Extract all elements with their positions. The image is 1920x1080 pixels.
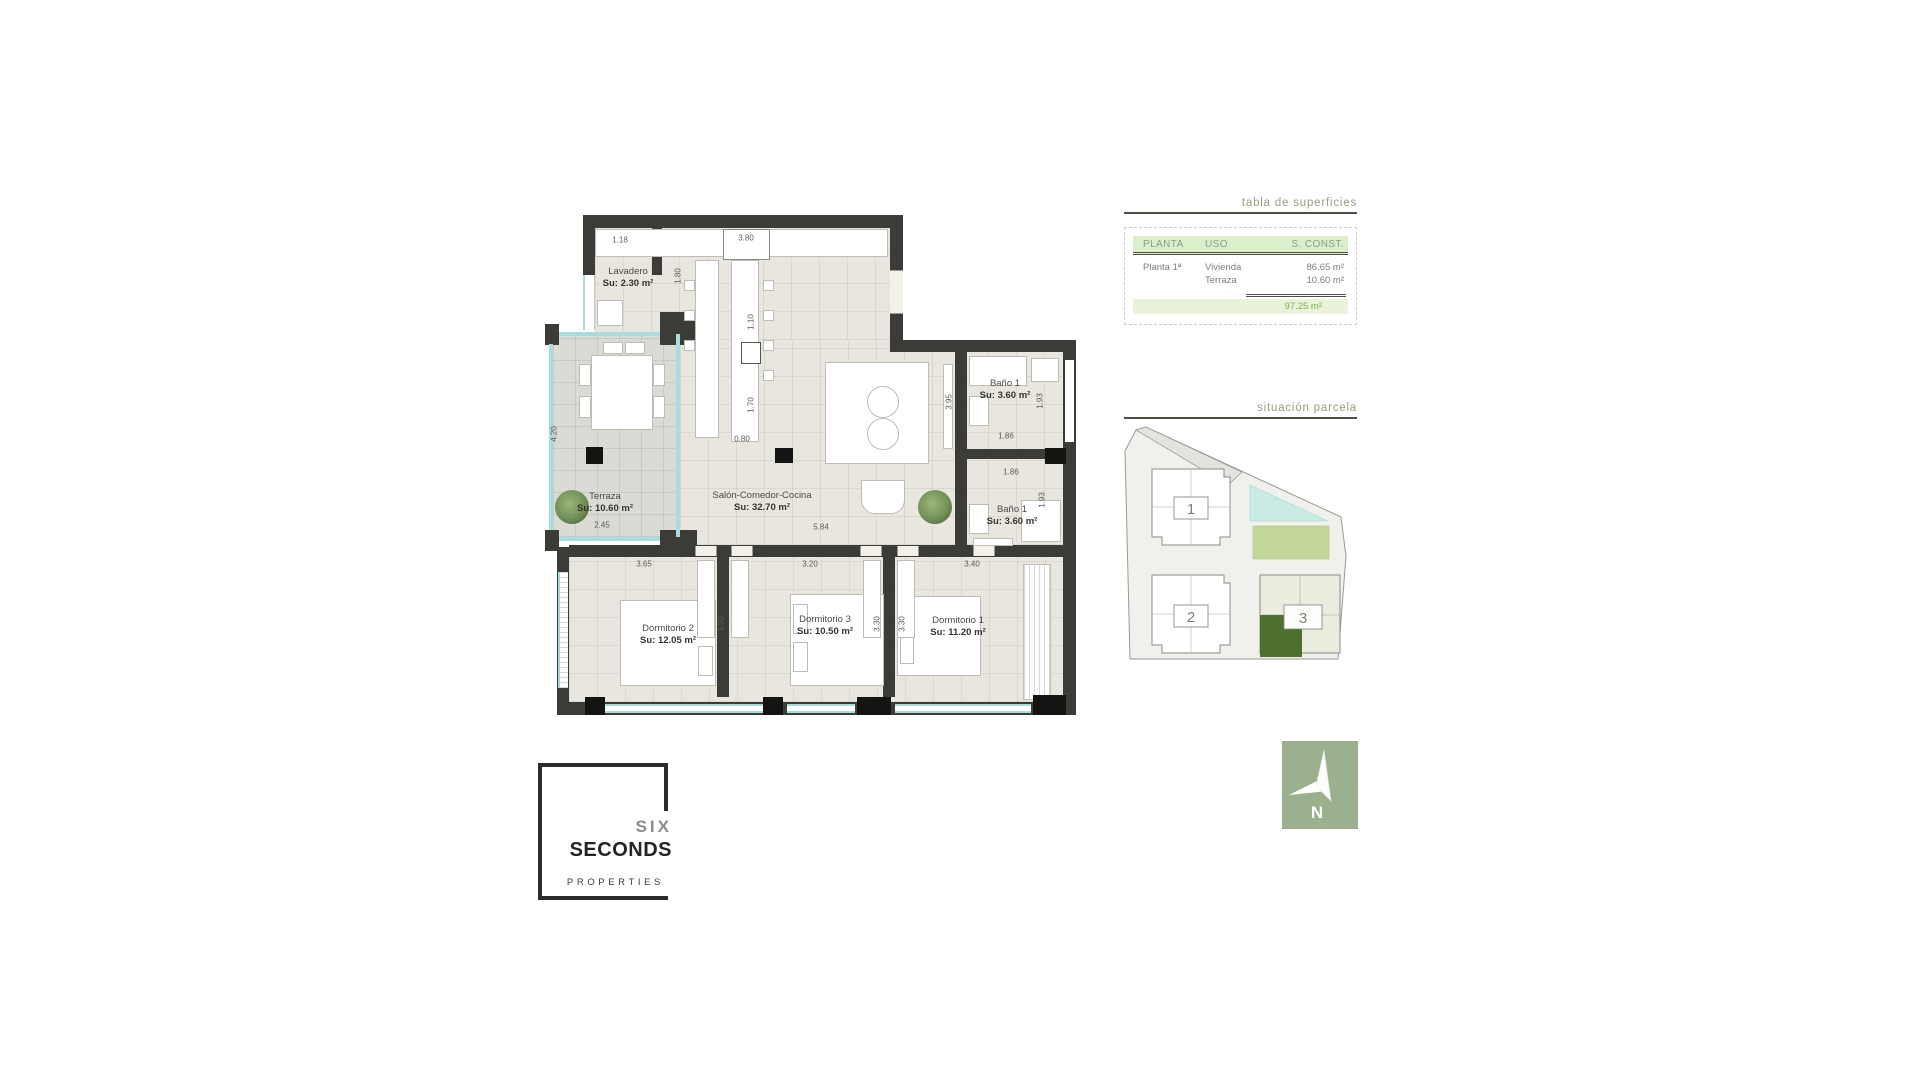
cell-sconst: 10.60 m² [1276, 275, 1348, 286]
header-sconst: S. CONST. [1276, 239, 1348, 250]
garden [1253, 526, 1329, 559]
room-name: Baño 1 [990, 378, 1020, 389]
dimension: 4.20 [550, 426, 559, 442]
parcel-map: 1 2 3 [1124, 425, 1357, 677]
room-area: Su: 2.30 m² [603, 278, 654, 289]
stool [684, 310, 695, 321]
wall [890, 340, 1076, 352]
pillow [900, 636, 914, 664]
pillar [763, 697, 783, 715]
door-opening [860, 546, 882, 556]
pillar [1033, 695, 1066, 715]
logo-word-six: SIX [636, 817, 672, 837]
dimension: 2.45 [594, 521, 610, 530]
room-name: Dormitorio 2 [642, 623, 694, 634]
pillar [1045, 448, 1066, 464]
logo-word-properties: PROPERTIES [567, 877, 664, 888]
stool [763, 310, 774, 321]
dimension: 3.20 [802, 560, 818, 569]
dimension: 3.95 [945, 394, 954, 410]
dimension: 1.86 [1003, 468, 1019, 477]
header-uso: USO [1205, 239, 1276, 250]
dimension: 3.30 [873, 616, 882, 632]
page: { "surfaces_table": { "title": "tabla de… [0, 0, 1920, 1080]
chair [603, 342, 623, 354]
surfaces-table-title: tabla de superficies [1124, 197, 1357, 209]
wall [583, 215, 903, 228]
stool [763, 280, 774, 291]
chair [653, 396, 665, 418]
room-name: Salón-Comedor-Cocina [712, 490, 811, 501]
pillar [586, 447, 603, 464]
room-label-dormitorio2: Dormitorio 2 Su: 12.05 m² [640, 623, 696, 648]
kitchen-counter [695, 260, 719, 438]
room-area: Su: 10.60 m² [577, 503, 633, 514]
north-label: N [1282, 803, 1352, 823]
vanity [973, 538, 1013, 546]
room-area: Su: 10.50 m² [797, 626, 853, 637]
pillar [857, 697, 891, 715]
table-row: Planta 1ª Vivienda 86.65 m² [1133, 262, 1348, 273]
closet [731, 560, 749, 638]
dimension: 1.70 [747, 397, 756, 413]
entry-door [890, 270, 903, 314]
window [787, 704, 855, 713]
needle [1316, 750, 1331, 801]
dimension: 5.84 [813, 523, 829, 532]
wall [955, 459, 967, 549]
stool [684, 280, 695, 291]
window [583, 275, 595, 330]
logo-word-seconds: SECONDS [570, 839, 672, 862]
coffee-table [867, 418, 899, 450]
building-2-label: 2 [1187, 609, 1195, 626]
cell-sconst: 86.65 m² [1276, 262, 1348, 273]
room-area: Su: 3.60 m² [987, 516, 1038, 527]
room-label-terraza: Terraza Su: 10.60 m² [577, 491, 633, 516]
window [605, 704, 763, 713]
wall [955, 352, 967, 452]
washer [597, 300, 623, 326]
room-label-bano1-top: Baño 1 Su: 3.60 m² [980, 378, 1031, 403]
terrace-glass-wall [676, 334, 680, 537]
terrace-glass-rail [559, 332, 660, 336]
pillow [698, 646, 713, 676]
chair [653, 364, 665, 386]
closet [697, 560, 715, 638]
sum-rule [1246, 294, 1346, 297]
room-name: Terraza [589, 491, 621, 502]
title-rule [1124, 417, 1357, 419]
door-opening [695, 546, 717, 556]
title-rule [1124, 212, 1357, 214]
total-surface: 97.25 m² [1133, 299, 1348, 314]
stool [763, 370, 774, 381]
room-area: Su: 12.05 m² [640, 635, 696, 646]
dimension: 0.80 [734, 435, 750, 444]
room-area: Su: 11.20 m² [930, 627, 985, 638]
wall [583, 215, 595, 275]
dimension: 1.93 [1038, 492, 1047, 508]
brand-logo: SIX SECONDS PROPERTIES [538, 763, 668, 900]
room-label-bano1-bottom: Baño 1 Su: 3.60 m² [987, 504, 1038, 529]
dimension: 3.65 [636, 560, 652, 569]
room-label-dormitorio3: Dormitorio 3 Su: 10.50 m² [797, 614, 853, 639]
window [895, 704, 1031, 713]
building-3-label: 3 [1299, 610, 1307, 627]
dimension: 3.30 [717, 616, 726, 632]
parcel-section: situación parcela 1 2 3 [1124, 402, 1357, 677]
wardrobe [1023, 564, 1051, 700]
room-name: Lavadero [608, 266, 648, 277]
room-label-dormitorio1: Dormitorio 1 Su: 11.20 m² [930, 615, 985, 640]
compass-needle-icon [1282, 741, 1358, 807]
window [558, 572, 568, 688]
plant [918, 490, 952, 524]
pillar [775, 448, 793, 463]
header-planta: PLANTA [1133, 239, 1205, 250]
dimension: 1.80 [674, 268, 683, 284]
door-opening [897, 546, 919, 556]
wall-corner [545, 530, 559, 551]
dimension: 1.93 [1036, 393, 1045, 409]
pool [1250, 485, 1328, 521]
pillar [585, 697, 605, 715]
surfaces-table-section: tabla de superficies PLANTA USO S. CONST… [1124, 197, 1357, 325]
north-compass: N [1282, 741, 1358, 829]
window [1065, 360, 1074, 442]
room-label-salon: Salón-Comedor-Cocina Su: 32.70 m² [712, 490, 811, 515]
stool [763, 340, 774, 351]
building-1-label: 1 [1187, 501, 1195, 518]
parcel-title: situación parcela [1124, 402, 1357, 414]
terrace-glass-rail [559, 537, 660, 541]
cell-planta: Planta 1ª [1133, 262, 1205, 273]
dimension: 3.40 [964, 560, 980, 569]
wall-corner [545, 324, 559, 345]
stool [684, 340, 695, 351]
terrace-table [591, 355, 653, 430]
dimension: 3.80 [738, 234, 754, 243]
room-label-lavadero: Lavadero Su: 2.30 m² [603, 266, 654, 291]
dimension: 1.18 [612, 236, 628, 245]
room-name: Dormitorio 1 [932, 615, 984, 626]
door-opening [973, 546, 995, 556]
cell-uso: Terraza [1205, 275, 1276, 286]
floor-plan: Lavadero Su: 2.30 m² Terraza Su: 10.60 m… [545, 212, 1077, 718]
pillow [793, 642, 808, 672]
surfaces-table: PLANTA USO S. CONST. Planta 1ª Vivienda … [1124, 227, 1357, 325]
chair [579, 364, 591, 386]
armchair [861, 480, 905, 514]
dimension: 3.30 [898, 616, 907, 632]
room-name: Dormitorio 3 [799, 614, 851, 625]
cell-uso: Vivienda [1205, 262, 1276, 273]
dimension: 1.86 [998, 432, 1014, 441]
sink [1031, 358, 1059, 382]
coffee-table [867, 386, 899, 418]
dimension: 1.10 [747, 314, 756, 330]
table-row: Terraza 10.60 m² [1133, 275, 1348, 286]
chair [579, 396, 591, 418]
table-header-row: PLANTA USO S. CONST. [1133, 236, 1348, 255]
room-area: Su: 32.70 m² [734, 502, 790, 513]
wall [883, 557, 895, 697]
chair [625, 342, 645, 354]
door-opening [731, 546, 753, 556]
room-area: Su: 3.60 m² [980, 390, 1031, 401]
room-name: Baño 1 [997, 504, 1027, 515]
kitchen-hob [741, 342, 761, 364]
